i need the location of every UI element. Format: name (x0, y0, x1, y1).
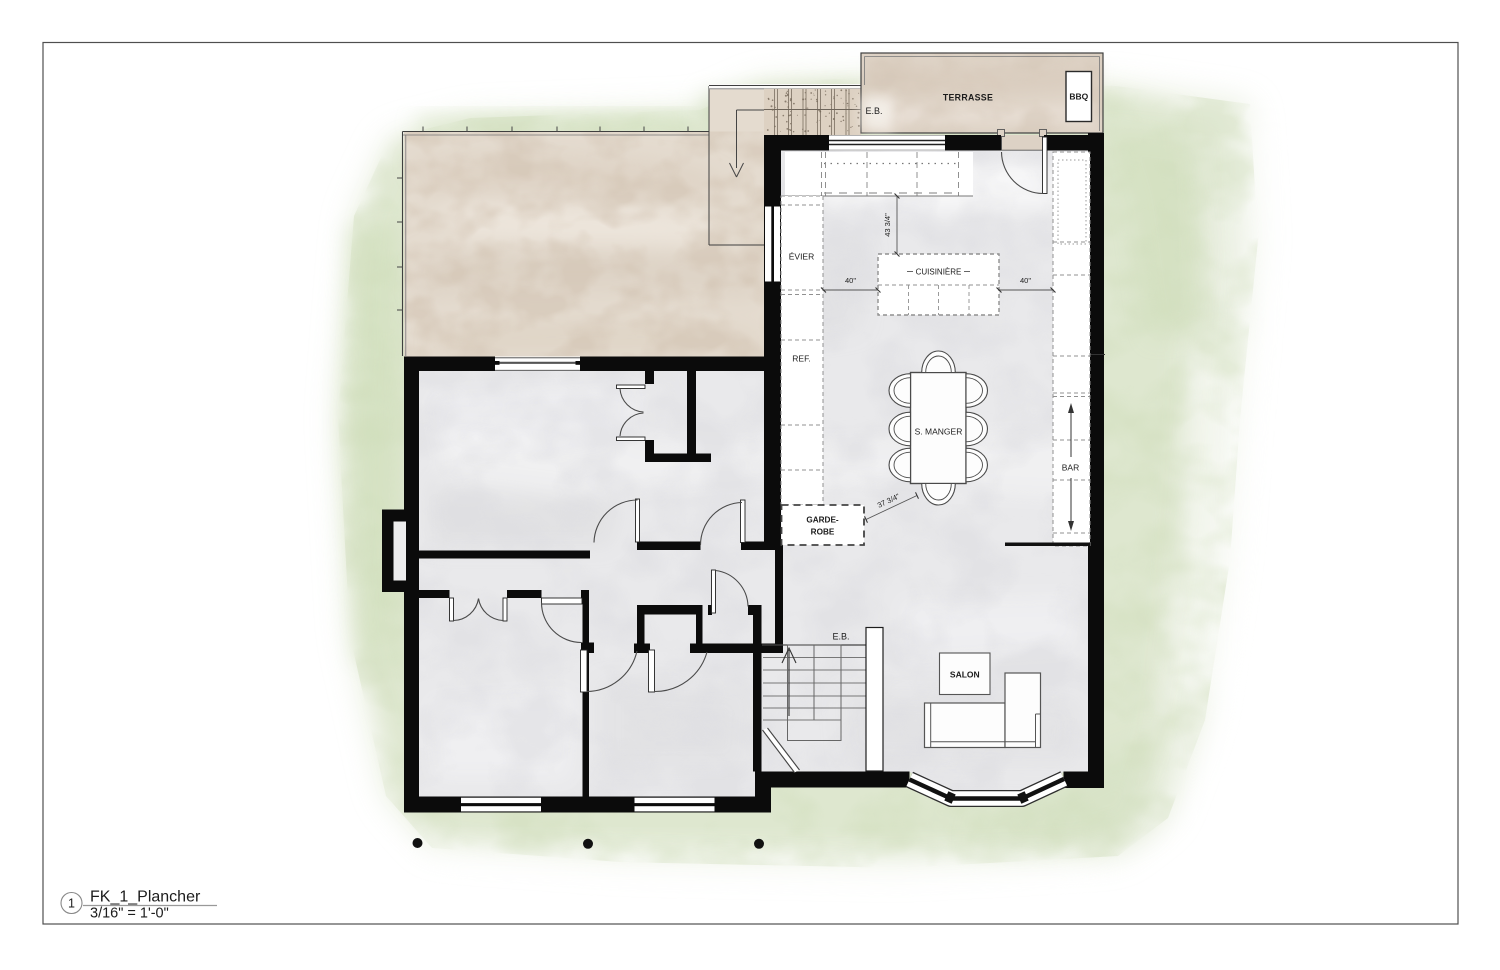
svg-text:40": 40" (1020, 276, 1031, 285)
svg-text:S. MANGER: S. MANGER (915, 427, 963, 437)
svg-text:BAR: BAR (1062, 463, 1079, 473)
svg-text:40": 40" (845, 276, 856, 285)
svg-text:ÉVIER: ÉVIER (789, 252, 815, 262)
svg-text:REF.: REF. (792, 354, 810, 364)
svg-text:SALON: SALON (950, 670, 980, 680)
svg-text:1: 1 (68, 897, 75, 911)
svg-text:3/16" = 1'-0": 3/16" = 1'-0" (90, 906, 169, 922)
svg-text:BBQ: BBQ (1069, 92, 1088, 102)
svg-text:ROBE: ROBE (811, 528, 835, 537)
svg-text:CUISINIÈRE: CUISINIÈRE (916, 268, 962, 277)
svg-text:FK_1_Plancher: FK_1_Plancher (90, 889, 201, 906)
svg-text:43 3/4": 43 3/4" (883, 213, 892, 237)
svg-text:GARDE-: GARDE- (806, 516, 839, 525)
svg-text:E.B.: E.B. (865, 106, 882, 116)
svg-text:E.B.: E.B. (832, 632, 849, 642)
svg-text:TERRASSE: TERRASSE (943, 93, 993, 103)
